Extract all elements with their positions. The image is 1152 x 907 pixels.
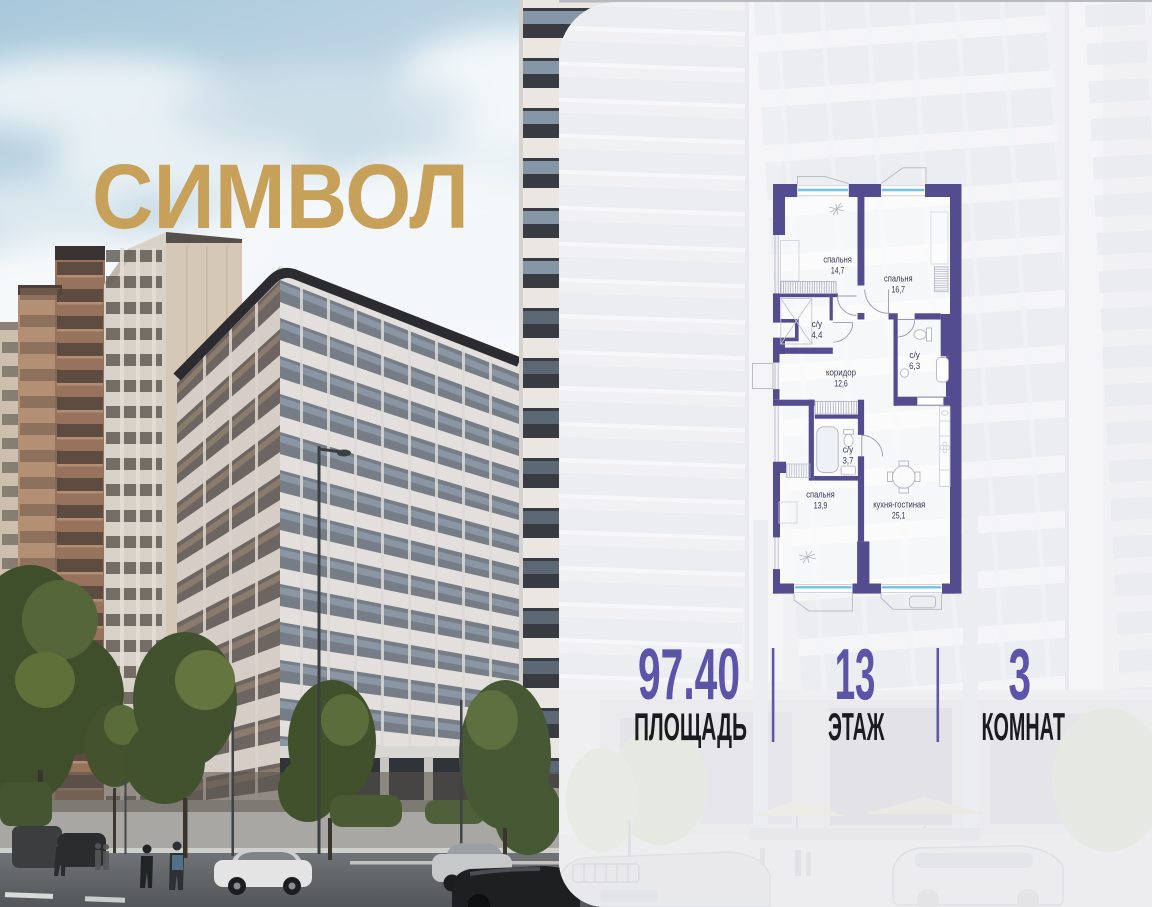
svg-text:97.40: 97.40	[638, 635, 740, 715]
svg-text:кухня-гостиная: кухня-гостиная	[873, 500, 925, 510]
svg-text:спальня: спальня	[884, 274, 913, 284]
svg-text:спальня: спальня	[823, 255, 852, 265]
svg-text:14,7: 14,7	[831, 266, 845, 276]
svg-text:3: 3	[1009, 635, 1032, 715]
svg-text:с/у: с/у	[812, 319, 823, 329]
svg-text:ПЛОЩАДЬ: ПЛОЩАДЬ	[634, 706, 747, 749]
svg-text:4,4: 4,4	[811, 330, 822, 340]
svg-text:с/у: с/у	[909, 350, 920, 360]
svg-text:13: 13	[835, 635, 876, 715]
svg-text:спальня: спальня	[806, 490, 835, 500]
svg-text:16,7: 16,7	[892, 285, 906, 295]
svg-text:12,6: 12,6	[834, 379, 848, 389]
svg-text:ЭТАЖ: ЭТАЖ	[828, 706, 884, 749]
svg-text:коридор: коридор	[826, 368, 856, 378]
svg-text:6,3: 6,3	[909, 361, 920, 371]
svg-text:3,7: 3,7	[843, 456, 854, 466]
svg-text:КОМНАТ: КОМНАТ	[982, 706, 1066, 749]
svg-text:с/у: с/у	[843, 445, 854, 455]
svg-text:13,9: 13,9	[814, 501, 828, 511]
svg-text:СИМВОЛ: СИМВОЛ	[92, 146, 469, 248]
svg-text:25,1: 25,1	[892, 511, 906, 521]
